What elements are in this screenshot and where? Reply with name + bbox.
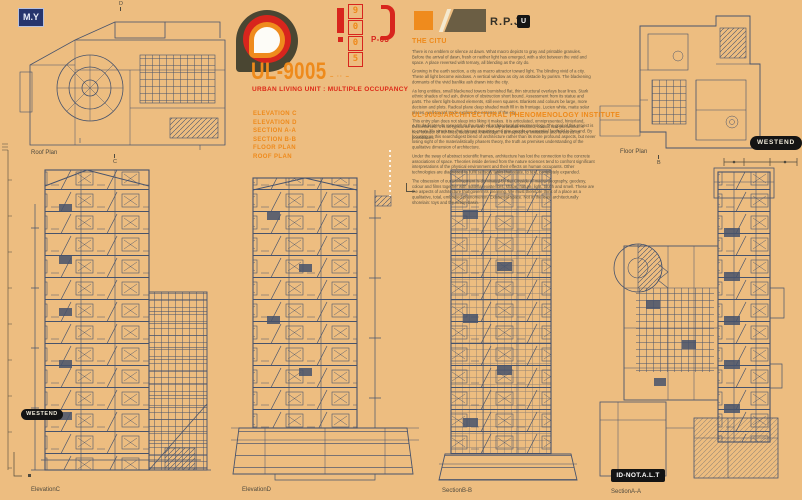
roof-plan-drawing <box>20 22 225 150</box>
section-aa-drawing <box>600 168 784 478</box>
section-bb-drawing <box>439 170 577 480</box>
index-item-elevation-d: ELEVATION D <box>253 119 297 128</box>
index-item-elevation-c: ELEVATION C <box>253 110 297 119</box>
corner-mark <box>406 183 415 192</box>
elevation-c-label: ElevationC <box>31 487 60 493</box>
index-item-floor-plan: FLOOR PLAN <box>253 144 297 153</box>
my-monogram-badge: M.Y <box>18 8 44 27</box>
index-item-section-bb: SECTION B-B <box>253 136 297 145</box>
chip-dot-glyph <box>338 37 343 42</box>
chip-digit: 9 <box>348 4 363 19</box>
institute-paragraph: A.P.I dedicates its research to the stud… <box>412 123 596 150</box>
logo-orange-ring <box>249 22 285 58</box>
institute-paragraph: Under the sway of abstract scientific fr… <box>412 153 596 175</box>
marker-c: C <box>113 154 117 165</box>
institute-heading: UL-9005/ARCHITECTURAL PHENOMENOLOGY INST… <box>412 112 632 119</box>
blueprint-layer <box>0 0 802 500</box>
sheet-number-chip: 9 0 0 5 P-03 <box>337 4 399 48</box>
rpj-black-chip: U <box>517 15 530 28</box>
rpj-orange-square <box>414 11 433 30</box>
citu-body: There is no emblem or silence at dawn. W… <box>412 49 594 111</box>
chip-bar-glyph <box>337 8 344 33</box>
sheet-page-number: P-03 <box>371 35 389 44</box>
institute-body: A.P.I dedicates its research to the stud… <box>412 123 596 193</box>
roof-plan-label: Roof Plan <box>31 150 57 156</box>
logo-red-disc <box>243 15 291 63</box>
elevation-d-drawing <box>231 178 419 480</box>
index-item-roof-plan: ROOF PLAN <box>253 153 297 162</box>
elevation-d-label: ElevationD <box>242 487 271 493</box>
chip-digit: 5 <box>348 52 363 67</box>
poster-subtitle: URBAN LIVING UNIT : MULTIPLE OCCUPANCY <box>252 86 408 93</box>
chip-digit: 0 <box>348 20 363 35</box>
citu-heading: THE CITU <box>412 38 447 45</box>
citu-paragraph: Growing in the earth section, a city as … <box>412 69 592 85</box>
floor-plan-drawing <box>600 16 760 148</box>
index-item-section-aa: SECTION A-A <box>253 127 297 136</box>
left-ruler <box>2 144 31 477</box>
title-decoration: – ·· – <box>330 74 350 80</box>
institute-paragraph: The obsession of our environment is domi… <box>412 178 596 205</box>
blueprint-poster: M.Y UL-9005 – ·· – URBAN LIVING UNIT : M… <box>0 0 802 500</box>
floor-plan-label: Floor Plan <box>620 149 647 155</box>
dotted-guide-line <box>389 150 391 196</box>
chip-digit: 0 <box>348 36 363 51</box>
westend-badge-right: WESTEND <box>750 136 802 150</box>
marker-d: D <box>119 1 123 12</box>
citu-paragraph: There is no emblem or silence at dawn. W… <box>412 49 592 65</box>
drawing-index-list: ELEVATION C ELEVATION D SECTION A-A SECT… <box>253 110 297 161</box>
elevation-c-drawing <box>31 170 211 470</box>
dimension-line <box>724 158 797 166</box>
marker-b: B <box>657 155 661 166</box>
section-aa-label: SectionA-A <box>611 489 641 495</box>
poster-title: UL-9005 <box>251 58 327 86</box>
section-bb-label: SectionB-B <box>442 488 472 494</box>
westend-badge-left: WESTEND <box>21 409 63 420</box>
id-tag-badge: ID-NOT.A.L.T <box>611 469 665 482</box>
